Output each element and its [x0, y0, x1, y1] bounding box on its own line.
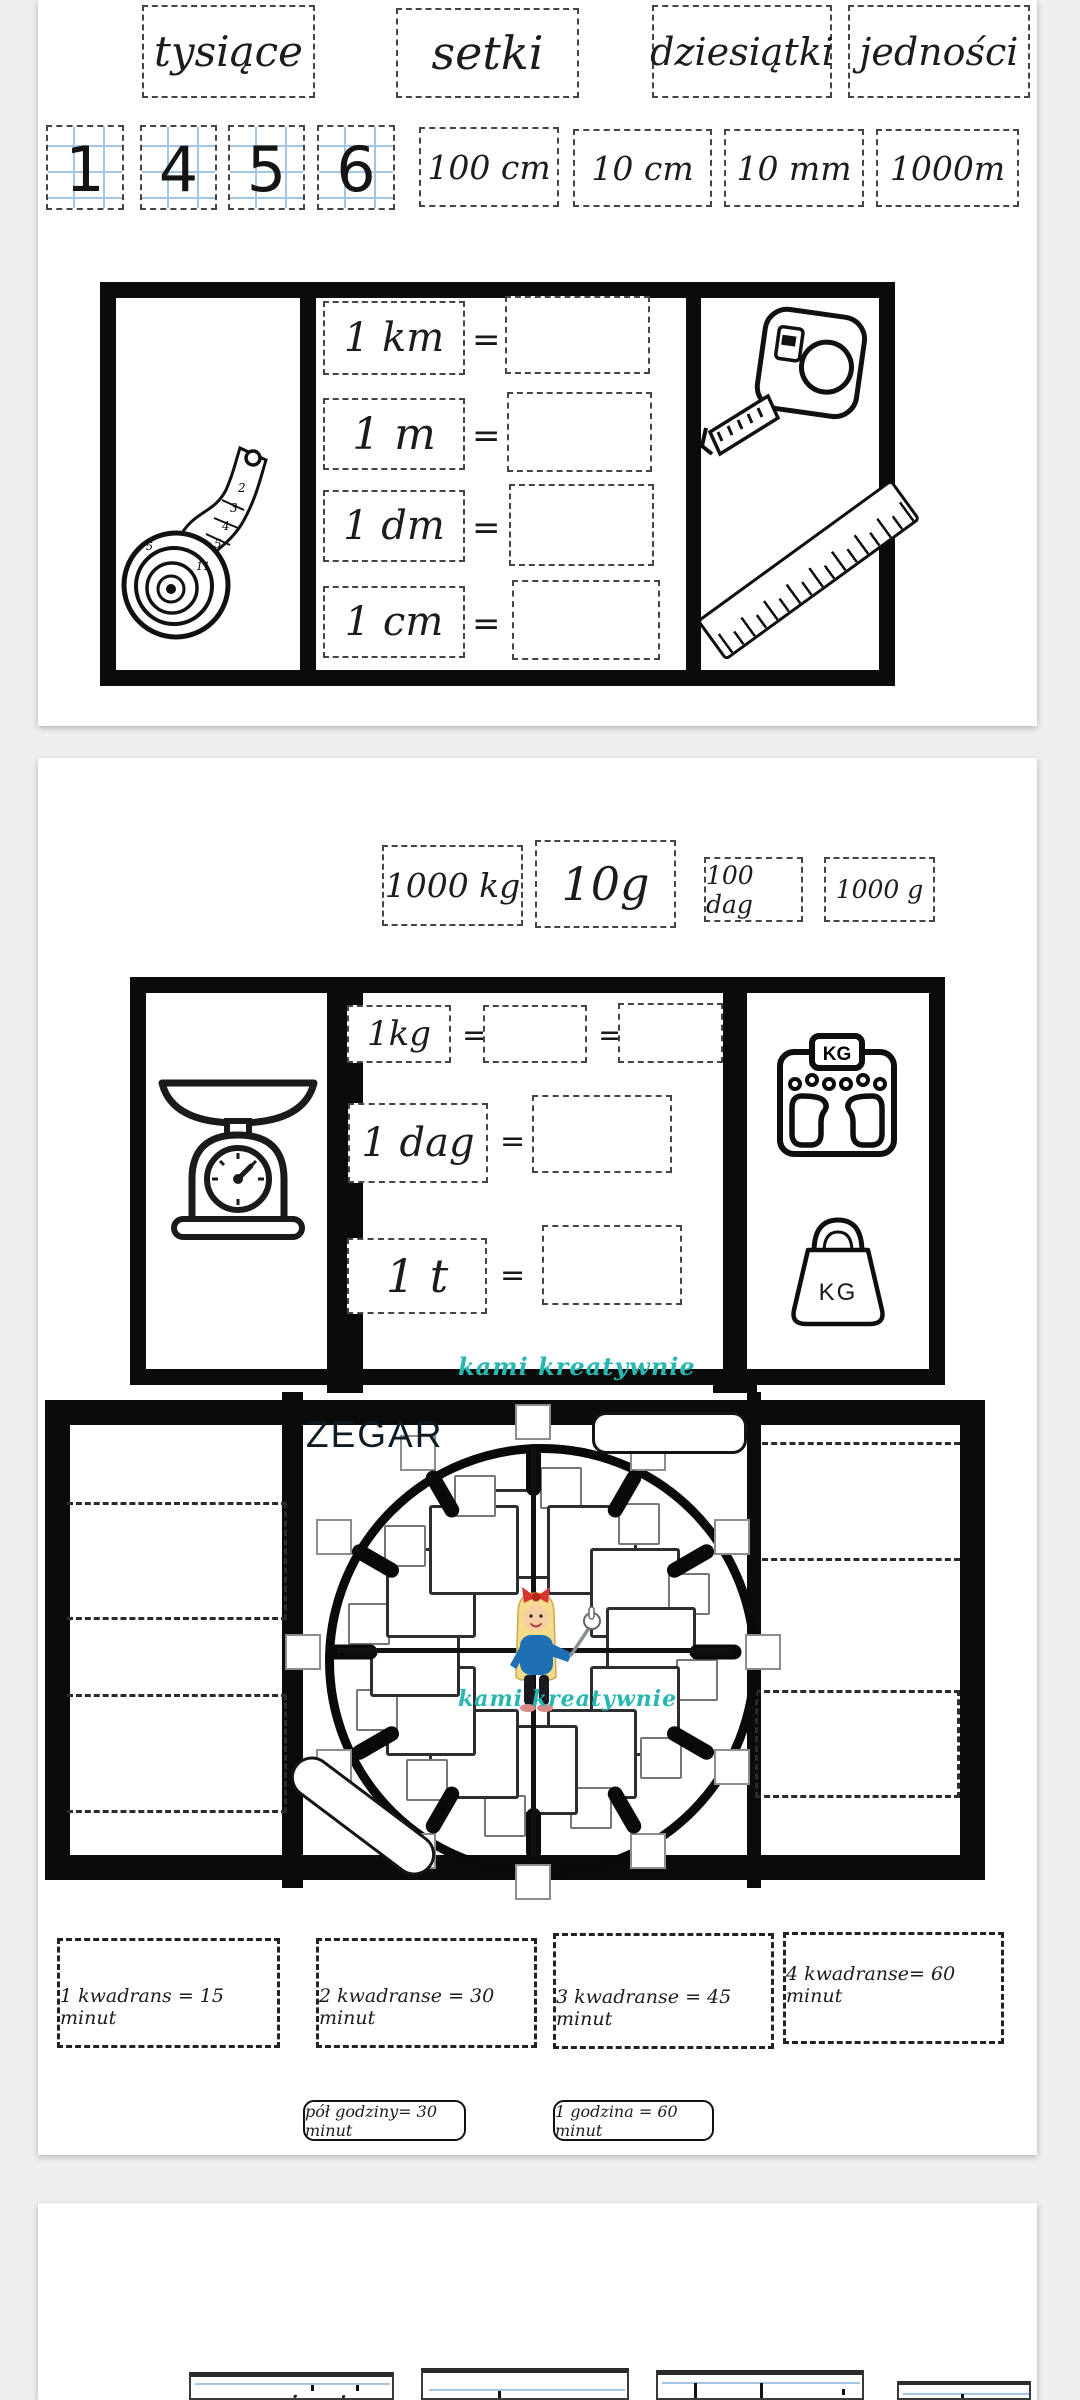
- mass-label-dag: 1 dag: [348, 1103, 488, 1183]
- card-label: jedności: [860, 30, 1019, 74]
- mass-card-10g: 10g: [535, 840, 676, 928]
- card-label: 100 dag: [706, 861, 801, 919]
- digit: 1: [48, 133, 122, 206]
- partial-title-box-4: [897, 2381, 1031, 2400]
- place-value-card-tens: dziesiątki: [652, 5, 832, 98]
- digit: 4: [142, 133, 215, 206]
- mass-answer-t: [542, 1225, 682, 1305]
- worksheet-viewer: tysiące setki dziesiątki jedności 1 4 5 …: [0, 0, 1080, 2400]
- mass-card-100dag: 100 dag: [704, 857, 803, 922]
- length-answer-km: [505, 296, 650, 374]
- watermark-text: kami kreatywnie: [458, 1686, 677, 1712]
- unit-label: 1kg: [367, 1014, 431, 1054]
- clock-number-placeholder-outer: [745, 1634, 781, 1670]
- clock-number-placeholder-small: [676, 1659, 718, 1701]
- unit-label: 1 t: [386, 1249, 448, 1303]
- fact-text: 1 kwadrans = 15 minut: [60, 1985, 277, 2029]
- measure-card-100cm: 100 cm: [419, 127, 559, 207]
- frame-tab: [282, 1880, 303, 1888]
- clock-number-placeholder-small: [348, 1603, 390, 1645]
- card-label: 10g: [562, 857, 650, 911]
- clock-number-placeholder-outer: [630, 1833, 666, 1869]
- clock-number-placeholder-small: [484, 1795, 526, 1837]
- time-fact-card-2: 2 kwadranse = 30 minut: [316, 1938, 537, 2048]
- equals-sign: =: [500, 1124, 525, 1159]
- card-label: 10 cm: [591, 149, 693, 188]
- digit-box-1: 1: [46, 125, 124, 210]
- card-label: 1000m: [890, 149, 1005, 188]
- clock-number-placeholder-outer: [515, 1404, 551, 1440]
- pill-text: pół godziny= 30 minut: [305, 2102, 464, 2140]
- partial-writing-stroke: [498, 2391, 501, 2400]
- kitchen-scale-icon: [148, 1055, 328, 1245]
- length-answer-cm: [512, 580, 660, 660]
- mass-card-1000kg: 1000 kg: [382, 845, 523, 926]
- svg-text:5: 5: [146, 540, 153, 553]
- clock-number-placeholder-outer: [316, 1519, 352, 1555]
- frame-tab: [747, 1880, 761, 1888]
- digit: 6: [319, 133, 393, 206]
- unit-label: 1 dm: [343, 503, 445, 549]
- equals-sign: =: [500, 1258, 525, 1293]
- length-answer-m: [507, 392, 652, 472]
- equals-sign: =: [472, 416, 501, 456]
- card-label: 1000 g: [836, 875, 924, 904]
- cut-strip-slot: [755, 1690, 960, 1798]
- fact-text: 4 kwadranse= 60 minut: [786, 1963, 1001, 2007]
- blank-label-plate: [592, 1412, 747, 1454]
- card-label: 10 mm: [736, 149, 851, 188]
- fact-text: 3 kwadranse = 45 minut: [556, 1986, 771, 2030]
- place-value-card-ones: jedności: [848, 5, 1030, 98]
- card-label: dziesiątki: [650, 30, 834, 74]
- svg-text:3: 3: [230, 501, 238, 515]
- card-label: 1000 kg: [385, 866, 521, 905]
- time-pill-hour: 1 godzina = 60 minut: [553, 2100, 714, 2141]
- partial-word: mnożenie: [191, 2389, 392, 2400]
- kettlebell-label: KG: [819, 1279, 858, 1306]
- partial-title-box-3: [656, 2370, 864, 2400]
- svg-text:2: 2: [237, 481, 246, 495]
- card-label: 100 cm: [427, 148, 550, 187]
- length-answer-dm: [509, 484, 654, 566]
- place-value-card-thousands: tysiące: [142, 5, 315, 98]
- clock-number-placeholder-outer: [714, 1749, 750, 1785]
- frame-divider: [300, 298, 316, 670]
- partial-writing-stroke: [311, 2385, 314, 2391]
- clock-number-placeholder-large: [429, 1505, 519, 1595]
- mass-answer-kg-2: [618, 1003, 723, 1063]
- place-value-card-hundreds: setki: [396, 8, 579, 98]
- cut-strip-slot: [67, 1502, 287, 1620]
- card-label: tysiące: [154, 27, 303, 76]
- cut-line: [762, 1442, 960, 1445]
- unit-label: 1 km: [344, 315, 444, 361]
- mass-answer-kg-1: [483, 1005, 587, 1063]
- length-label-km: 1 km: [323, 301, 465, 375]
- partial-writing-stroke: [694, 2383, 697, 2400]
- length-label-cm: 1 cm: [323, 586, 465, 658]
- time-fact-card-1: 1 kwadrans = 15 minut: [57, 1938, 280, 2048]
- pill-text: 1 godzina = 60 minut: [555, 2102, 712, 2140]
- clock-number-placeholder-outer: [285, 1634, 321, 1670]
- cut-line: [762, 1558, 960, 1561]
- bathroom-scale-icon: KG: [772, 1032, 902, 1162]
- partial-writing-stroke: [842, 2389, 845, 2395]
- tape-measure-icon: [698, 300, 883, 480]
- mass-card-1000g: 1000 g: [824, 857, 935, 922]
- time-fact-card-3: 3 kwadranse = 45 minut: [553, 1933, 774, 2049]
- kettlebell-weight-icon: KG: [786, 1212, 891, 1332]
- partial-title-box-1: mnożenie: [189, 2372, 394, 2400]
- length-label-dm: 1 dm: [323, 490, 465, 562]
- partial-title-box-2: [421, 2368, 629, 2400]
- watermark-text: kami kreatywnie: [458, 1352, 696, 1381]
- frame-tab: [282, 1392, 303, 1400]
- measure-card-10mm: 10 mm: [724, 129, 864, 207]
- digit-box-3: 5: [228, 125, 305, 210]
- measure-card-10cm: 10 cm: [573, 129, 712, 207]
- frame-divider: [723, 993, 747, 1369]
- unit-label: 1 cm: [345, 599, 444, 645]
- svg-text:4: 4: [221, 519, 230, 533]
- mass-label-t: 1 t: [347, 1238, 487, 1314]
- measuring-tape-roll-icon: 2 3 4 5 5 11: [118, 420, 288, 660]
- frame-tab: [747, 1392, 761, 1400]
- time-fact-card-4: 4 kwadranse= 60 minut: [783, 1932, 1004, 2044]
- digit-box-4: 6: [317, 125, 395, 210]
- scale-display-label: KG: [823, 1044, 852, 1065]
- clock-number-placeholder-outer: [515, 1864, 551, 1900]
- fact-text: 2 kwadranse = 30 minut: [319, 1985, 534, 2029]
- clock-section-title: ZEGAR: [306, 1414, 443, 1456]
- length-label-m: 1 m: [323, 398, 465, 470]
- cut-strip-slot: [67, 1694, 287, 1813]
- frame-tab: [327, 1385, 363, 1393]
- equals-sign: =: [472, 508, 501, 548]
- digit-box-2: 4: [140, 125, 217, 210]
- unit-label: 1 dag: [361, 1120, 474, 1166]
- clock-number-placeholder-small: [454, 1475, 496, 1517]
- unit-label: 1 m: [352, 409, 436, 460]
- card-label: setki: [432, 26, 544, 80]
- partial-writing-stroke: [356, 2385, 359, 2391]
- time-pill-half-hour: pół godziny= 30 minut: [303, 2100, 466, 2141]
- partial-writing-stroke: [961, 2394, 964, 2400]
- mass-answer-dag: [532, 1095, 672, 1173]
- clock-number-placeholder-small: [618, 1503, 660, 1545]
- equals-sign: =: [472, 604, 501, 644]
- clock-number-placeholder-small: [540, 1467, 582, 1509]
- measure-card-1000m: 1000m: [876, 129, 1019, 207]
- equals-sign: =: [472, 320, 501, 360]
- digit: 5: [230, 133, 303, 206]
- clock-number-placeholder-outer: [714, 1519, 750, 1555]
- mass-label-kg: 1kg: [347, 1005, 451, 1063]
- svg-text:11: 11: [196, 560, 210, 573]
- partial-writing-stroke: [760, 2383, 763, 2400]
